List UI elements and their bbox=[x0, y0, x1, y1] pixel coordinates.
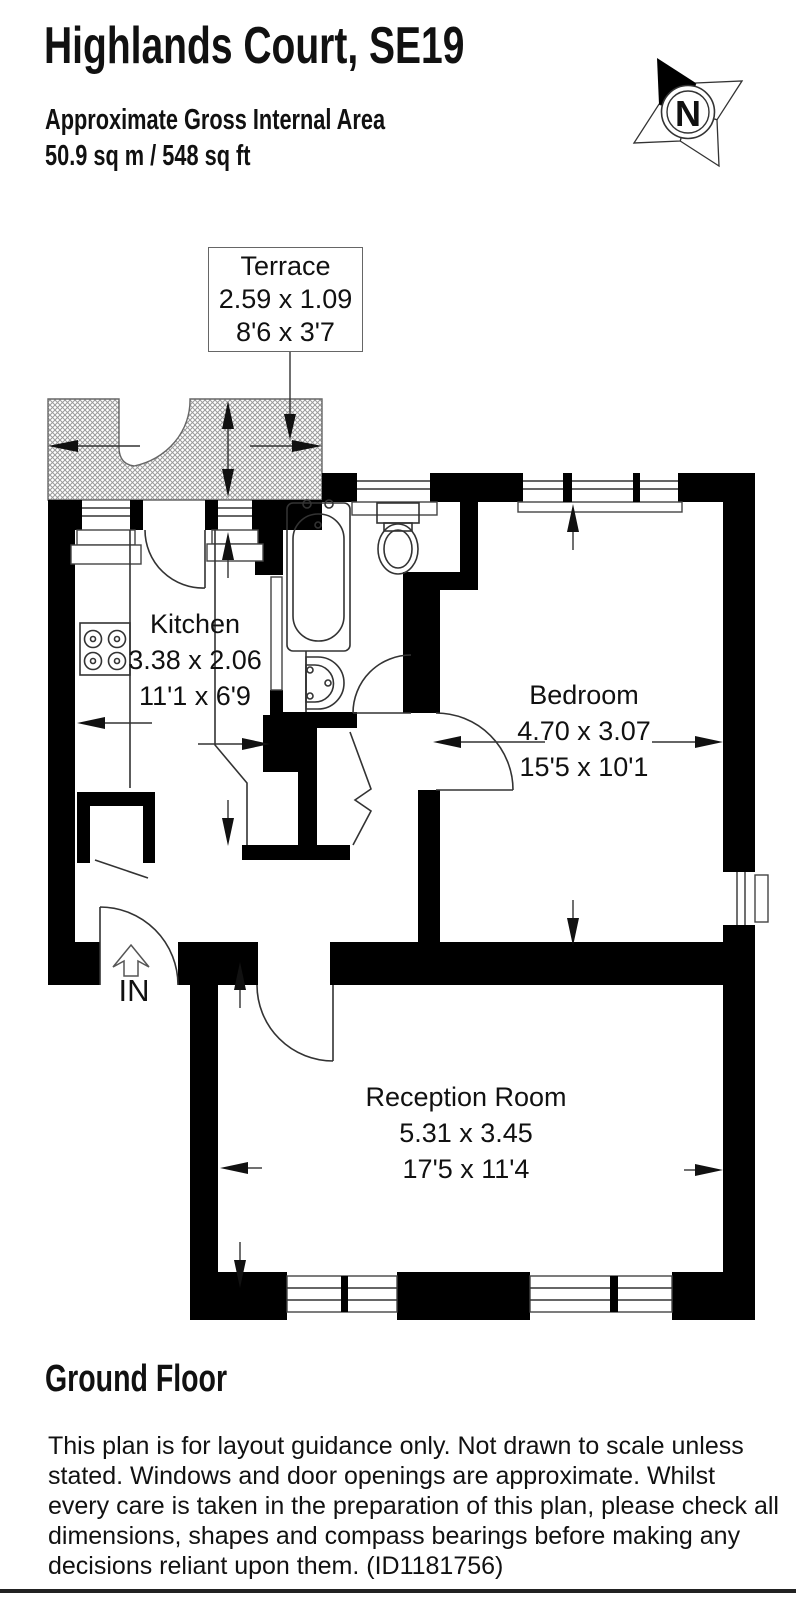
terrace-metric: 2.59 x 1.09 bbox=[209, 283, 362, 316]
compass-north-label: N bbox=[675, 93, 701, 135]
disclaimer-line: every care is taken in the preparation o… bbox=[48, 1491, 779, 1521]
bottom-rule bbox=[0, 1589, 796, 1593]
stove-icon bbox=[80, 623, 130, 675]
area-label: Approximate Gross Internal Area bbox=[45, 104, 498, 137]
reception-room-metric: 5.31 x 3.45 bbox=[365, 1115, 566, 1151]
floor-heading: Ground Floor bbox=[45, 1358, 288, 1401]
bedroom-imperial: 15'5 x 10'1 bbox=[517, 749, 651, 785]
terrace-area bbox=[48, 399, 322, 500]
bedroom-name: Bedroom bbox=[517, 677, 651, 713]
bedroom-metric: 4.70 x 3.07 bbox=[517, 713, 651, 749]
sink-icon bbox=[306, 657, 344, 709]
disclaimer-line: dimensions, shapes and compass bearings … bbox=[48, 1521, 779, 1551]
kitchen-label: Kitchen 3.38 x 2.06 11'1 x 6'9 bbox=[128, 606, 262, 714]
kitchen-imperial: 11'1 x 6'9 bbox=[128, 678, 262, 714]
reception-room-name: Reception Room bbox=[365, 1079, 566, 1115]
bedroom-label: Bedroom 4.70 x 3.07 15'5 x 10'1 bbox=[517, 677, 651, 785]
reception-room-imperial: 17'5 x 11'4 bbox=[365, 1151, 566, 1187]
terrace-imperial: 8'6 x 3'7 bbox=[209, 316, 362, 349]
terrace-label-box: Terrace 2.59 x 1.09 8'6 x 3'7 bbox=[208, 247, 363, 352]
disclaimer: This plan is for layout guidance only. N… bbox=[48, 1431, 779, 1581]
terrace-name: Terrace bbox=[209, 250, 362, 283]
disclaimer-line: decisions reliant upon them. (ID1181756) bbox=[48, 1551, 779, 1581]
area-label-text: Approximate Gross Internal Area bbox=[45, 104, 385, 137]
area-value: 50.9 sq m / 548 sq ft bbox=[45, 140, 319, 173]
entrance-arrow-icon bbox=[113, 945, 149, 976]
walls bbox=[48, 473, 755, 1320]
kitchen-metric: 3.38 x 2.06 bbox=[128, 642, 262, 678]
disclaimer-line: stated. Windows and door openings are ap… bbox=[48, 1461, 779, 1491]
disclaimer-line: This plan is for layout guidance only. N… bbox=[48, 1431, 779, 1461]
floorplan-page: Highlands Court, SE19 Approximate Gross … bbox=[0, 0, 796, 1600]
reception-room-label: Reception Room 5.31 x 3.45 17'5 x 11'4 bbox=[365, 1079, 566, 1187]
page-title: Highlands Court, SE19 bbox=[44, 16, 605, 76]
kitchen-name: Kitchen bbox=[128, 606, 262, 642]
entrance-label: IN bbox=[119, 973, 150, 1009]
floor-heading-text: Ground Floor bbox=[45, 1358, 227, 1401]
area-value-text: 50.9 sq m / 548 sq ft bbox=[45, 140, 251, 173]
page-title-text: Highlands Court, SE19 bbox=[44, 16, 464, 76]
